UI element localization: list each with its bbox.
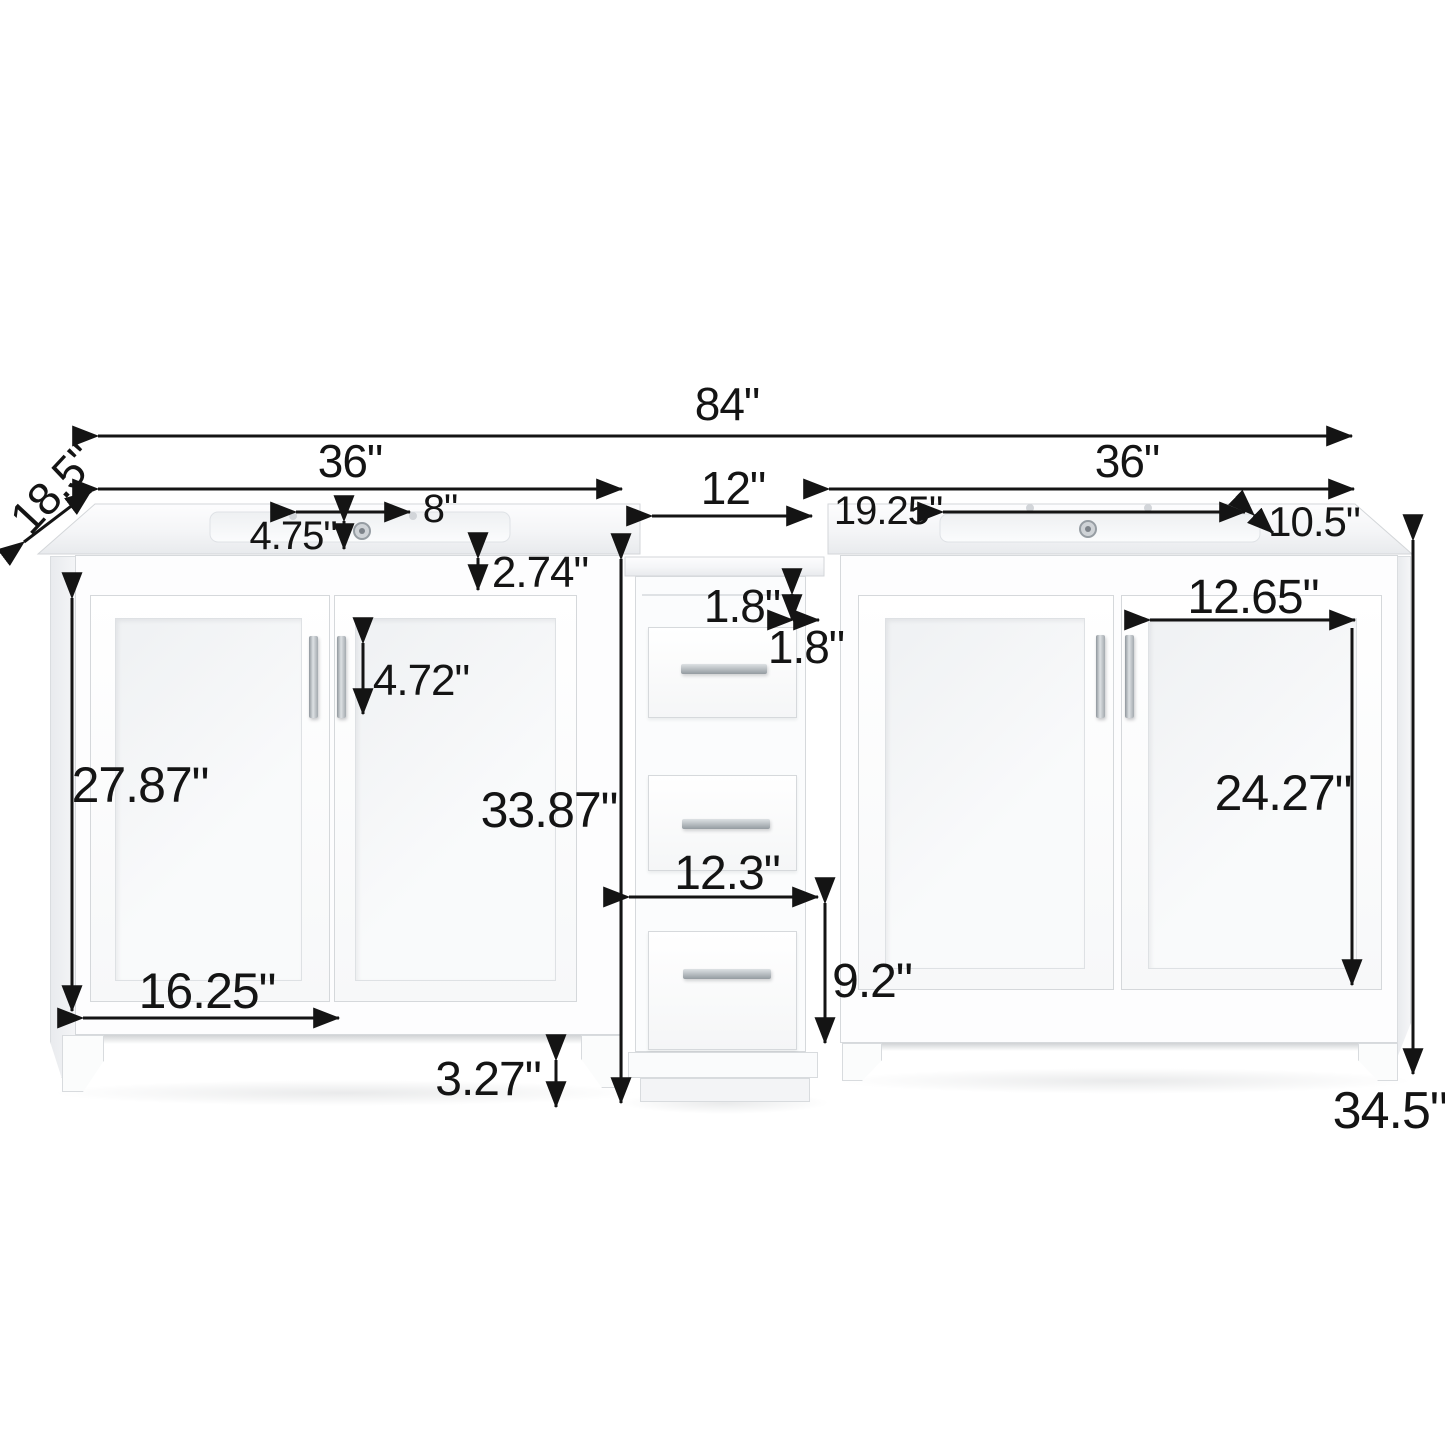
tower-top-slab xyxy=(625,557,824,576)
dim-label-right-cabinet-width: 36" xyxy=(1095,438,1160,484)
right-vanity-handle-right xyxy=(1125,635,1134,718)
middle-tower-plinth xyxy=(628,1052,818,1078)
dim-label-sink-side-offset: 19.25" xyxy=(834,491,942,531)
middle-tower-drawer-3 xyxy=(648,931,797,1050)
left-vanity-handle-right xyxy=(337,636,346,718)
middle-tower-foot xyxy=(640,1078,810,1102)
left-faucet-hole-center-dot-icon xyxy=(359,528,365,534)
right-vanity-door-left xyxy=(858,595,1114,990)
left-vanity-floor-shadow xyxy=(50,1080,640,1106)
dim-label-left-door-height: 27.87" xyxy=(72,760,209,810)
right-sink-recess xyxy=(940,514,1260,542)
left-vanity-handle-left xyxy=(309,636,318,718)
right-faucet-hole-left-icon xyxy=(1026,504,1034,512)
dim-label-right-door-height: 24.27" xyxy=(1215,768,1352,818)
dim-label-overall-height: 34.5" xyxy=(1333,1085,1445,1137)
dim-label-middle-tower-width: 12" xyxy=(701,465,766,511)
middle-tower-drawer-3-handle xyxy=(683,969,771,979)
right-vanity-floor-shadow xyxy=(835,1068,1415,1094)
middle-tower-drawer-2-handle xyxy=(682,819,770,829)
vanity-dimension-diagram: 84" 36" 36" 12" 18.5" 8" 4.75" 2.74" 19.… xyxy=(0,0,1445,1445)
dim-label-toe-kick-height: 3.27" xyxy=(435,1056,540,1104)
middle-tower-drawer-1-handle xyxy=(681,664,767,674)
right-faucet-hole-center-dot-icon xyxy=(1085,526,1091,532)
dim-label-tower-side-rail: 1.8" xyxy=(768,624,844,670)
dim-label-left-cabinet-width: 36" xyxy=(318,438,383,484)
dim-label-handle-length: 4.72" xyxy=(373,659,469,703)
right-faucet-hole-right-icon xyxy=(1144,504,1152,512)
right-vanity-door-left-panel xyxy=(885,618,1085,969)
dim-label-overall-width: 84" xyxy=(695,381,760,427)
dim-label-sink-bowl-depth: 10.5" xyxy=(1268,501,1360,543)
dim-label-middle-tower-height: 33.87" xyxy=(481,785,618,835)
dim-label-tower-drawer-width: 12.3" xyxy=(674,850,779,898)
dim-label-counter-to-door-gap: 2.74" xyxy=(492,551,588,595)
dim-label-faucet-spread: 8" xyxy=(423,489,457,529)
right-vanity-side-face xyxy=(1397,556,1411,1058)
right-vanity-underside-shadow xyxy=(882,1043,1358,1051)
left-vanity-side-face xyxy=(50,556,76,1078)
dim-label-right-door-panel-width: 12.65" xyxy=(1187,574,1318,622)
left-faucet-hole-right-icon xyxy=(409,512,417,520)
left-vanity-underside-shadow xyxy=(104,1035,581,1044)
right-vanity-handle-left xyxy=(1096,635,1105,718)
dim-label-left-door-width: 16.25" xyxy=(139,966,276,1016)
dim-label-sink-back-offset: 4.75" xyxy=(249,516,336,556)
dim-label-bottom-drawer-height: 9.2" xyxy=(832,958,912,1006)
